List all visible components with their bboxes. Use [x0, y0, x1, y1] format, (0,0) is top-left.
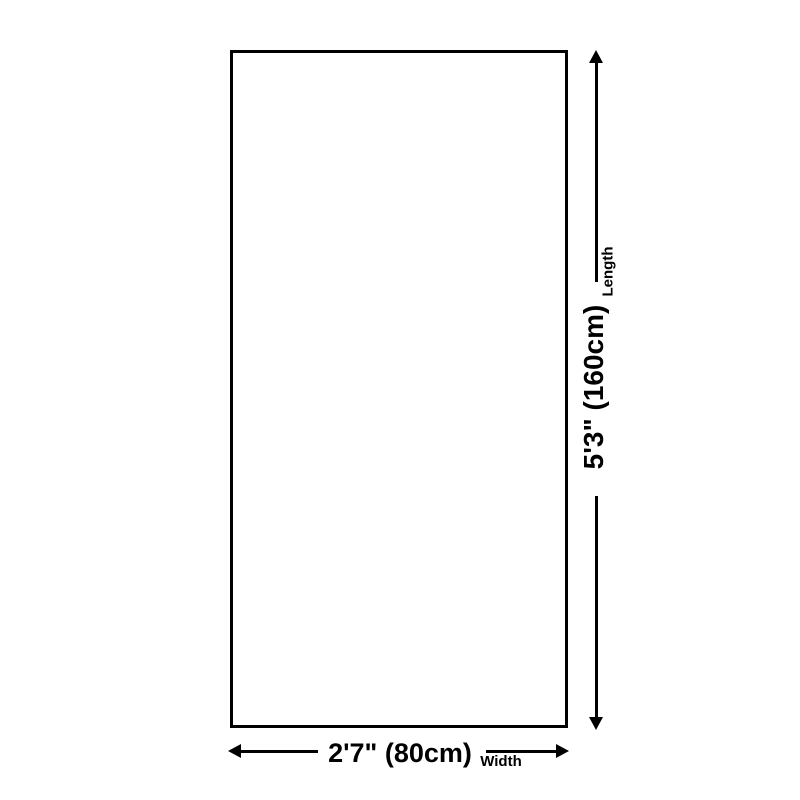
product-outline-rectangle	[230, 50, 568, 728]
length-dimension-label: Length	[600, 237, 617, 307]
arrow-down-icon	[589, 717, 603, 730]
width-dimension-line-left	[239, 750, 318, 753]
arrow-right-icon	[556, 744, 569, 758]
width-dimension-label: Width	[471, 753, 531, 770]
width-dimension-value: 2'7" (80cm)	[310, 737, 490, 769]
length-dimension-line-bottom	[595, 496, 598, 718]
dimension-diagram: 5'3" (160cm) Length 2'7" (80cm) Width	[0, 0, 800, 800]
length-dimension-line-top	[595, 61, 598, 282]
